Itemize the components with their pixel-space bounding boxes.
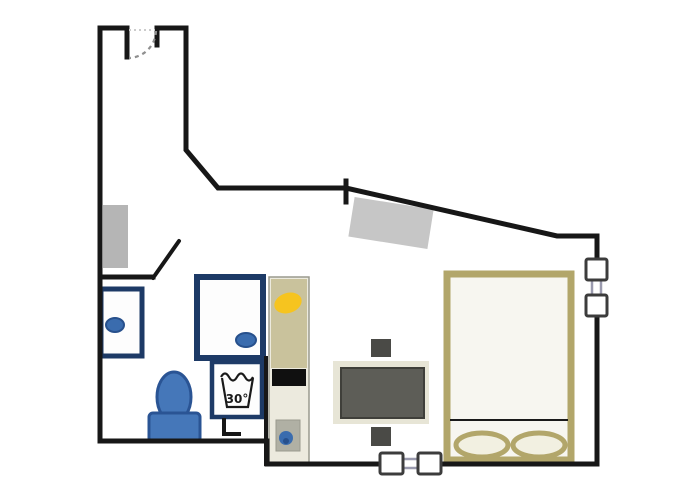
washing-machine-temp-label: 30° (226, 392, 249, 406)
entrance-door-arc (129, 31, 156, 58)
dining-set (333, 339, 429, 446)
shower-drain (236, 333, 256, 347)
entrance-door-jambs (127, 28, 157, 57)
radiator-left (103, 205, 128, 268)
pillow-right (513, 433, 565, 457)
window-right-sash-bottom (586, 295, 607, 316)
window-bottom-sash-right (418, 453, 441, 474)
window-right (586, 259, 607, 316)
window-right-sash-top (586, 259, 607, 280)
bathroom-door-leaf (153, 241, 179, 278)
window-right-pane-lines (592, 281, 601, 294)
toilet (149, 372, 200, 442)
bed (447, 274, 571, 460)
washbasin-drain (106, 318, 124, 332)
kitchen-counter-worktop (271, 279, 307, 368)
window-bottom (380, 453, 441, 474)
washing-machine-nook-wall (224, 420, 239, 434)
pillow-left (456, 433, 508, 457)
dining-table (341, 368, 424, 418)
washing-machine: 30° (212, 362, 262, 417)
cooktop (272, 369, 306, 386)
kitchen-counter (269, 277, 309, 463)
chair-bottom (371, 427, 391, 446)
washing-machine-body (212, 362, 262, 417)
window-bottom-sash-left (380, 453, 403, 474)
chair-top (371, 339, 391, 357)
toilet-tank (149, 413, 200, 442)
floor-plan-canvas: 30° (0, 0, 700, 500)
kitchen-sink-drain-center (283, 438, 289, 444)
floor-plan: 30° (0, 0, 700, 500)
window-bottom-pane-lines (404, 459, 417, 468)
